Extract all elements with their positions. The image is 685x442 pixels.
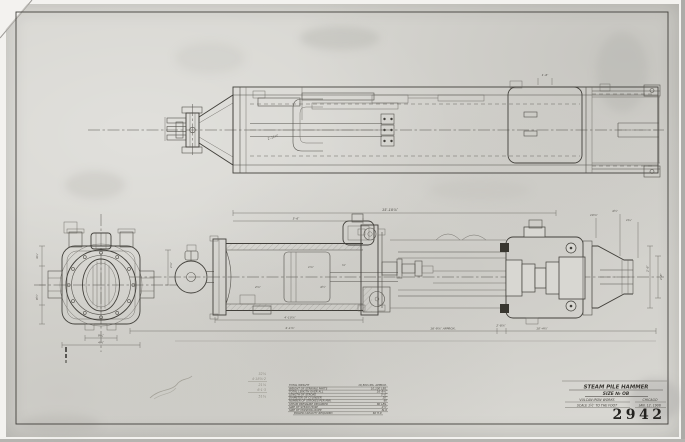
dim-label-end-r1: 1⅞″ (169, 261, 173, 268)
maker-city: CHICAGO (643, 398, 658, 402)
maker-name: VULCAN IRON WORKS (579, 398, 614, 402)
exhaust-foot (363, 287, 390, 312)
pencil-notes: 32⅞ 4·18⅞·2 21⅞ 6·1·3 51¾ (150, 372, 267, 399)
dim-label-top-small: 1′-6″ (542, 73, 550, 77)
dim-label-end-b2: 4½″ (98, 341, 105, 345)
dim-label-nose-t1: 10⅞″ (590, 213, 599, 217)
steam-dome (343, 214, 376, 245)
border-frame (16, 12, 668, 424)
dim-label-nose-t2: 4½″ (612, 209, 619, 213)
dim-label-in1: 1⅞″ (308, 265, 315, 269)
plan-view: 1′-6″ 2′-11½″ (88, 73, 664, 177)
dim-label-in3: 2⅞″ (255, 285, 262, 289)
pencil-calc-4: 6·1·3 (257, 388, 266, 392)
section-lower-dimensions: 4′-10⅞″ 4′-1⅞″ 16′-9⅞″ APPROX. 2′-8⅞″ 10… (130, 316, 656, 342)
dim-label-nose-w: 10′-4½″ (536, 327, 548, 331)
technical-drawing: 1′-6″ 2′-11½″ (0, 0, 685, 442)
pencil-calc-1: 32⅞ (258, 372, 266, 376)
cylinder-section (226, 244, 363, 315)
end-view-dimensions: 4¼″ 8½″ 1⅞″ 9¾″ 4½″ (35, 246, 173, 348)
dim-label-head-w: 2′-8⅞″ (496, 324, 506, 328)
dim-label-right-v1: 2′-8″ (646, 264, 650, 272)
section-upper-dimensions: 15′-10⅞″ 5′-6″ 10⅞″ 4½″ 1¾″ (233, 208, 638, 258)
anvil-block-section (500, 220, 585, 324)
ram-guide-rails (390, 234, 506, 308)
drawing-number: 2942 (613, 407, 666, 423)
pencil-calc-2: 4·18⅞·2 (252, 377, 266, 381)
nose-taper-section (583, 241, 633, 315)
cylinder-front-cap (210, 236, 226, 319)
spec-value-9: 60 H.P. (373, 411, 382, 415)
dim-label-end-l1: 4¼″ (35, 252, 39, 259)
sheave-ball (175, 245, 214, 293)
dim-label-right-v2: 1′-8″ (659, 272, 663, 280)
head-block-plan (508, 81, 582, 163)
steam-pipe-fitting (382, 259, 433, 278)
scanned-blueprint-sheet: 1′-6″ 2′-11½″ (0, 0, 685, 442)
spec-label-9: BOILER CAPACITY REQUIRED (294, 411, 333, 415)
pencil-calc-3: 21⅞ (258, 383, 266, 387)
steam-passage-plan (293, 99, 323, 151)
section-view: 1⅞″ 4½″ 2⅞″ ⅝″ (130, 208, 664, 341)
dim-label-sec-under1: 4′-10⅞″ (284, 316, 296, 320)
dim-label-in2: 4½″ (320, 285, 327, 289)
end-view: 4¼″ 8½″ 1⅞″ 9¾″ 4½″ (34, 214, 178, 363)
dim-label-overall: 16′-9⅞″ APPROX. (430, 327, 456, 331)
drawing-title: STEAM PILE HAMMER (584, 385, 649, 391)
valve-gear-plan (253, 87, 484, 120)
dim-label-top-diag: 2′-11½″ (267, 133, 280, 141)
pencil-calc-5: 51¾ (258, 395, 266, 399)
dim-label-end-b1: 9¾″ (98, 334, 105, 338)
dim-label-sec-overall: 15′-10⅞″ (382, 208, 399, 212)
top-studs (64, 222, 135, 249)
spec-table: TOTAL WEIGHT 16,500 LBS. APPROX. WEIGHT … (288, 383, 388, 415)
dim-label-end-l2: 8½″ (35, 293, 39, 300)
dim-label-sec-under2: 4′-1⅞″ (285, 326, 295, 330)
dim-label-nose-t3: 1¾″ (626, 218, 633, 222)
dim-label-sec-left: 5′-6″ (293, 217, 301, 221)
dim-label-in4: ⅝″ (342, 263, 347, 267)
